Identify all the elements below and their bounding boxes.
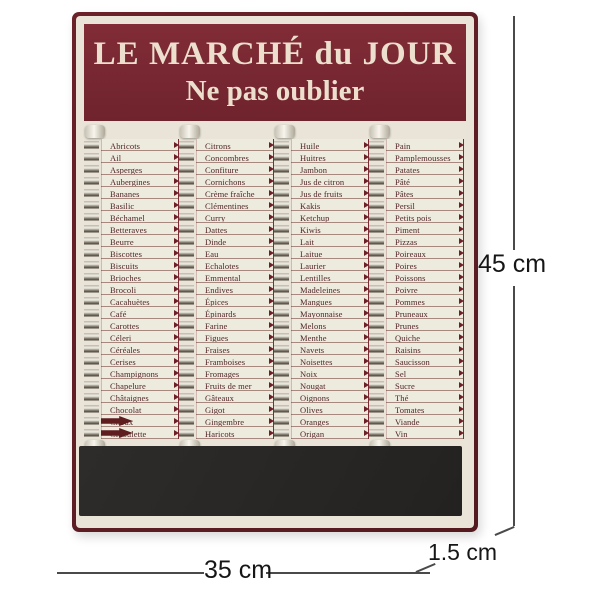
list-item: Céréales <box>101 343 179 355</box>
item-label: Bananes <box>101 189 140 199</box>
list-item: Aubergines <box>101 175 179 187</box>
list-item: Oignons <box>291 391 369 403</box>
list-item: Carottes <box>101 319 179 331</box>
item-label: Fromages <box>196 369 239 379</box>
list-item: Pâté <box>386 175 464 187</box>
item-label: Épices <box>196 297 228 307</box>
item-label: Crème fraîche <box>196 189 255 199</box>
item-label: Farine <box>196 321 227 331</box>
list-item: Châtaignes <box>101 391 179 403</box>
list-item: Biscottes <box>101 247 179 259</box>
item-label: Tomates <box>386 405 424 415</box>
item-label: Pommes <box>386 297 425 307</box>
spiral-binding-icon <box>179 139 194 439</box>
list-item: Brocoli <box>101 283 179 295</box>
list-item: Betteraves <box>101 223 179 235</box>
item-label: Persil <box>386 201 415 211</box>
list-item: Noix <box>291 367 369 379</box>
list-item: Noisettes <box>291 355 369 367</box>
list-item: Fromages <box>196 367 274 379</box>
list-item: Poissons <box>386 271 464 283</box>
list-item: Mayonnaise <box>291 307 369 319</box>
list-item: Quiche <box>386 331 464 343</box>
item-label: Thé <box>386 393 409 403</box>
item-label: Huitres <box>291 153 326 163</box>
item-label: Café <box>101 309 126 319</box>
item-label: Pruneaux <box>386 309 428 319</box>
item-label: Confiture <box>196 165 238 175</box>
item-label: Origan <box>291 429 324 439</box>
list-item: Jus de fruits <box>291 187 369 199</box>
list-item: Emmental <box>196 271 274 283</box>
item-label: Sucre <box>386 381 415 391</box>
list-item: Kiwis <box>291 223 369 235</box>
item-label: Abricots <box>101 141 140 151</box>
list-item: Cerises <box>101 355 179 367</box>
list-item: Poivre <box>386 283 464 295</box>
height-dimension-line <box>513 286 515 526</box>
item-label: Oignons <box>291 393 330 403</box>
item-label: Châtaignes <box>101 393 149 403</box>
item-label: Cacahuètes <box>101 297 150 307</box>
item-label: Lentilles <box>291 273 331 283</box>
item-label: Dinde <box>196 237 226 247</box>
list-column-4: PainPamplemoussesPatatesPâtéPâtesPersilP… <box>371 123 464 456</box>
item-label: Carottes <box>101 321 139 331</box>
list-item: Cacahuètes <box>101 295 179 307</box>
spiral-binding-icon <box>84 139 99 439</box>
item-label: Beurre <box>101 237 134 247</box>
list-item: Nougat <box>291 379 369 391</box>
board-subtitle: Ne pas oublier <box>186 74 365 109</box>
item-label: Petits pois <box>386 213 431 223</box>
depth-dimension-label: 1.5 cm <box>428 541 497 564</box>
list-item: Eau <box>196 247 274 259</box>
list-item: Béchamel <box>101 211 179 223</box>
item-label: Figues <box>196 333 228 343</box>
list-item: Citrons <box>196 139 274 151</box>
list-item: Gâteaux <box>196 391 274 403</box>
item-label: Aubergines <box>101 177 150 187</box>
rod-cap-top <box>85 125 105 138</box>
item-label: Huile <box>291 141 319 151</box>
depth-dimension-tick <box>495 526 515 536</box>
item-label: Quiche <box>386 333 420 343</box>
item-label: Biscottes <box>101 249 142 259</box>
item-label: Madeleines <box>291 285 340 295</box>
list-item: Oranges <box>291 415 369 427</box>
list-item: Sel <box>386 367 464 379</box>
item-label: Raisins <box>386 345 421 355</box>
list-item: Persil <box>386 199 464 211</box>
list-item: Thé <box>386 391 464 403</box>
item-label: Melons <box>291 321 326 331</box>
list-item: Piment <box>386 223 464 235</box>
item-label: Champignons <box>101 369 158 379</box>
list-item: Abricots <box>101 139 179 151</box>
list-item: Épinards <box>196 307 274 319</box>
item-label: Jus de fruits <box>291 189 342 199</box>
item-label: Noix <box>291 369 317 379</box>
list-item: Melons <box>291 319 369 331</box>
list-item: Pommes <box>386 295 464 307</box>
list-column-1: AbricotsAilAspergesAuberginesBananesBasi… <box>86 123 179 456</box>
item-label: Gâteaux <box>196 393 234 403</box>
spiral-binding-icon <box>274 139 289 439</box>
list-item: Haricots <box>196 427 274 439</box>
list-column-3: HuileHuitresJambonJus de citronJus de fr… <box>276 123 369 456</box>
list-item: Clémentines <box>196 199 274 211</box>
list-item: Dinde <box>196 235 274 247</box>
board-title: LE MARCHÉ du JOUR <box>94 36 457 74</box>
item-label: Citrons <box>196 141 231 151</box>
list-item: Jus de citron <box>291 175 369 187</box>
item-label: Fruits de mer <box>196 381 252 391</box>
item-label: Viande <box>386 417 420 427</box>
list-item: Dattes <box>196 223 274 235</box>
list-item: Ketchup <box>291 211 369 223</box>
spiral-binding-icon <box>369 139 384 439</box>
item-label: Framboises <box>196 357 245 367</box>
list-item: Confiture <box>196 163 274 175</box>
list-item: Figues <box>196 331 274 343</box>
item-label: Saucisson <box>386 357 430 367</box>
item-label: Asperges <box>101 165 142 175</box>
list-item: Chapelure <box>101 379 179 391</box>
width-dimension-label: 35 cm <box>204 558 272 583</box>
item-label: Laitue <box>291 249 322 259</box>
board-face: LE MARCHÉ du JOUR Ne pas oublier Abricot… <box>76 16 474 528</box>
item-label: Mangues <box>291 297 332 307</box>
list-item: Olives <box>291 403 369 415</box>
item-label: Jambon <box>291 165 327 175</box>
height-dimension-label: 45 cm <box>478 252 546 277</box>
item-label: Pain <box>386 141 411 151</box>
width-dimension-line <box>57 572 204 574</box>
list-item: Beurre <box>101 235 179 247</box>
slip-list: AbricotsAilAspergesAuberginesBananesBasi… <box>101 139 179 439</box>
list-item: Épices <box>196 295 274 307</box>
item-label: Emmental <box>196 273 241 283</box>
list-item: Crème fraîche <box>196 187 274 199</box>
item-label: Fraises <box>196 345 230 355</box>
list-item: Menthe <box>291 331 369 343</box>
list-item: Céleri <box>101 331 179 343</box>
item-label: Céleri <box>101 333 131 343</box>
list-item: Gigot <box>196 403 274 415</box>
list-item: Asperges <box>101 163 179 175</box>
item-label: Jus de citron <box>291 177 344 187</box>
item-label: Cerises <box>101 357 136 367</box>
item-label: Clémentines <box>196 201 249 211</box>
item-label: Pâtes <box>386 189 413 199</box>
item-label: Olives <box>291 405 323 415</box>
item-label: Patates <box>386 165 420 175</box>
list-item: Lait <box>291 235 369 247</box>
item-label: Endives <box>196 285 233 295</box>
item-label: Ketchup <box>291 213 330 223</box>
item-label: Céréales <box>101 345 140 355</box>
list-column-2: CitronsConcombresConfitureCornichonsCrèm… <box>181 123 274 456</box>
item-label: Pamplemousses <box>386 153 451 163</box>
rod-cap-top <box>180 125 200 138</box>
item-label: Curry <box>196 213 225 223</box>
item-label: Navets <box>291 345 324 355</box>
item-label: Oranges <box>291 417 329 427</box>
item-label: Lait <box>291 237 314 247</box>
item-label: Laurier <box>291 261 326 271</box>
width-dimension-line <box>266 572 430 574</box>
list-item: Navets <box>291 343 369 355</box>
list-item: Vin <box>386 427 464 439</box>
item-label: Mayonnaise <box>291 309 343 319</box>
list-item: Poires <box>386 259 464 271</box>
list-item: Madeleines <box>291 283 369 295</box>
product-photo: LE MARCHÉ du JOUR Ne pas oublier Abricot… <box>0 0 600 600</box>
list-item: Echalotes <box>196 259 274 271</box>
list-item: Prunes <box>386 319 464 331</box>
height-dimension-line <box>513 16 515 250</box>
item-label: Pizzas <box>386 237 417 247</box>
memo-board: LE MARCHÉ du JOUR Ne pas oublier Abricot… <box>72 12 478 532</box>
slip-list: HuileHuitresJambonJus de citronJus de fr… <box>291 139 369 439</box>
item-label: Épinards <box>196 309 236 319</box>
list-item: Fraises <box>196 343 274 355</box>
rod-cap-top <box>370 125 390 138</box>
item-label: Brocoli <box>101 285 136 295</box>
list-item: Mangues <box>291 295 369 307</box>
item-label: Gingembre <box>196 417 244 427</box>
list-item: Tomates <box>386 403 464 415</box>
item-label: Echalotes <box>196 261 239 271</box>
item-label: Ail <box>101 153 121 163</box>
item-label: Noisettes <box>291 357 333 367</box>
list-item: Pâtes <box>386 187 464 199</box>
list-item: Champignons <box>101 367 179 379</box>
list-item: Framboises <box>196 355 274 367</box>
item-label: Dattes <box>196 225 227 235</box>
item-label: Haricots <box>196 429 235 439</box>
item-label: Vin <box>386 429 408 439</box>
rod-cap-top <box>275 125 295 138</box>
list-item: Raisins <box>386 343 464 355</box>
list-item: Pruneaux <box>386 307 464 319</box>
item-label: Concombres <box>196 153 249 163</box>
list-item: Sucre <box>386 379 464 391</box>
slip-list: CitronsConcombresConfitureCornichonsCrèm… <box>196 139 274 439</box>
list-item: Pamplemousses <box>386 151 464 163</box>
list-item: Choux <box>101 415 179 427</box>
list-item: Pain <box>386 139 464 151</box>
list-item: Endives <box>196 283 274 295</box>
item-label: Betteraves <box>101 225 147 235</box>
list-item: Kakis <box>291 199 369 211</box>
item-label: Basilic <box>101 201 134 211</box>
list-item: Petits pois <box>386 211 464 223</box>
list-item: Concombres <box>196 151 274 163</box>
list-item: Huile <box>291 139 369 151</box>
list-item: Cornichons <box>196 175 274 187</box>
list-item: Chocolat <box>101 403 179 415</box>
list-item: Laitue <box>291 247 369 259</box>
list-item: Laurier <box>291 259 369 271</box>
list-item: Fruits de mer <box>196 379 274 391</box>
list-item: Huitres <box>291 151 369 163</box>
list-item: Jambon <box>291 163 369 175</box>
list-item: Ciboulette <box>101 427 179 439</box>
slip-list: PainPamplemoussesPatatesPâtéPâtesPersilP… <box>386 139 464 439</box>
list-item: Ail <box>101 151 179 163</box>
list-item: Farine <box>196 319 274 331</box>
list-item: Viande <box>386 415 464 427</box>
item-label: Brioches <box>101 273 141 283</box>
item-label: Gigot <box>196 405 225 415</box>
item-label: Chapelure <box>101 381 146 391</box>
list-item: Gingembre <box>196 415 274 427</box>
list-item: Bananes <box>101 187 179 199</box>
item-label: Poivre <box>386 285 418 295</box>
item-label: Prunes <box>386 321 419 331</box>
item-label: Kiwis <box>291 225 321 235</box>
chalkboard <box>79 446 462 516</box>
item-label: Nougat <box>291 381 326 391</box>
item-label: Pâté <box>386 177 410 187</box>
list-item: Poireaux <box>386 247 464 259</box>
item-label: Sel <box>386 369 406 379</box>
item-label: Poissons <box>386 273 426 283</box>
item-label: Poireaux <box>386 249 426 259</box>
item-label: Piment <box>386 225 420 235</box>
title-panel: LE MARCHÉ du JOUR Ne pas oublier <box>84 24 466 121</box>
item-label: Cornichons <box>196 177 245 187</box>
list-item: Lentilles <box>291 271 369 283</box>
list-item: Patates <box>386 163 464 175</box>
item-label: Menthe <box>291 333 327 343</box>
list-item: Café <box>101 307 179 319</box>
item-label: Eau <box>196 249 219 259</box>
item-label: Chocolat <box>101 405 142 415</box>
list-item: Saucisson <box>386 355 464 367</box>
list-item: Origan <box>291 427 369 439</box>
list-item: Brioches <box>101 271 179 283</box>
item-label: Poires <box>386 261 417 271</box>
list-item: Biscuits <box>101 259 179 271</box>
item-label: Béchamel <box>101 213 145 223</box>
list-item: Basilic <box>101 199 179 211</box>
grocery-lists: AbricotsAilAspergesAuberginesBananesBasi… <box>84 123 466 456</box>
list-item: Curry <box>196 211 274 223</box>
item-label: Kakis <box>291 201 320 211</box>
item-label: Biscuits <box>101 261 138 271</box>
list-item: Pizzas <box>386 235 464 247</box>
